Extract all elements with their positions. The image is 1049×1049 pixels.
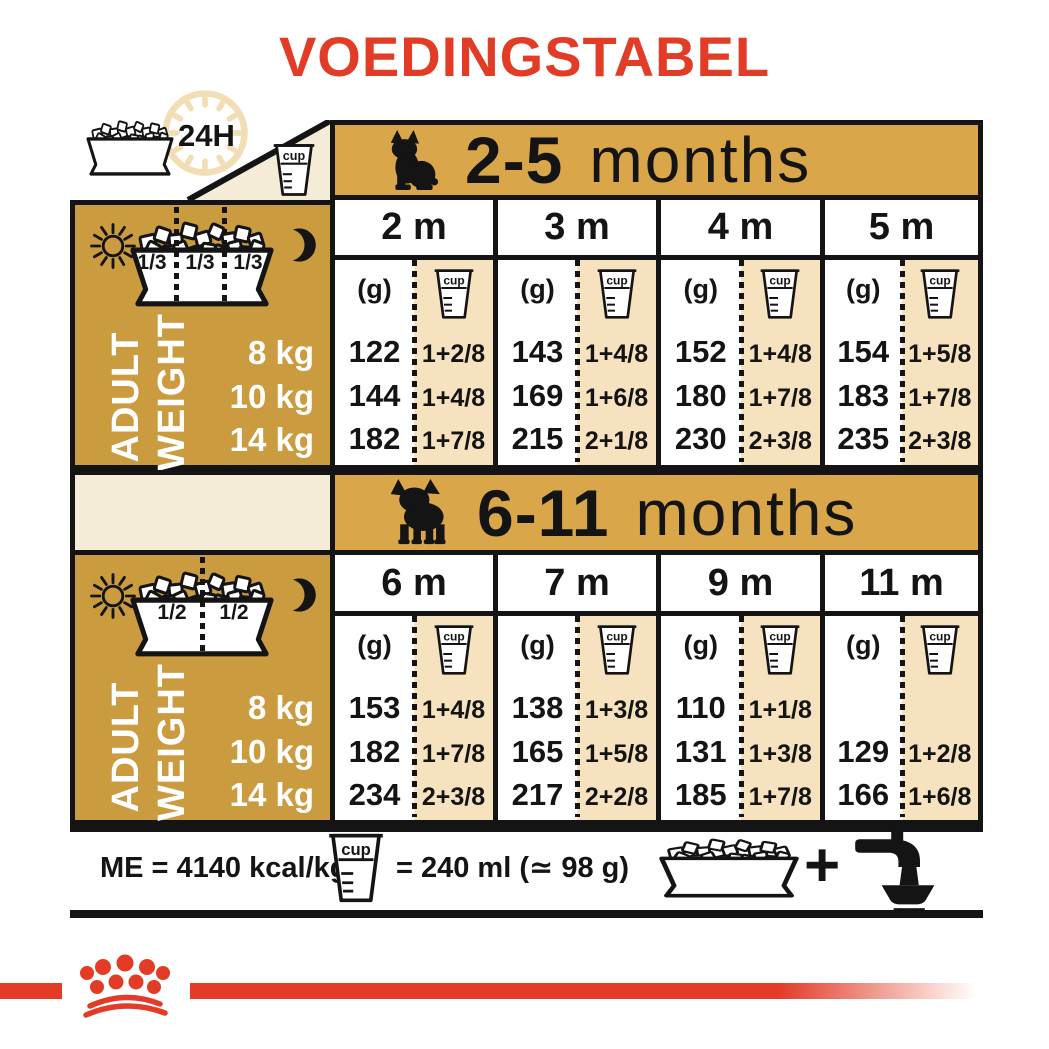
portion-fraction: 1/3 [226, 251, 270, 275]
cups-value [902, 692, 979, 724]
cup-icon [902, 623, 979, 679]
water-tap-icon [848, 824, 944, 912]
grams-value: 110 [661, 692, 741, 724]
cups-value: 1+6/8 [577, 380, 656, 412]
weight-panel: 1/2 1/2 ADULT WEIGHT 8 kg 10 kg 14 kg [75, 555, 330, 820]
month-header-cell: 2 m [335, 200, 493, 255]
food-bowl-icon [652, 834, 806, 900]
grams-unit: (g) [825, 630, 902, 661]
footer-top-rule [70, 825, 983, 832]
grams-value: 183 [825, 380, 902, 412]
cups-value: 1+7/8 [902, 380, 979, 412]
weight-panel: 1/3 1/3 1/3 ADULT WEIGHT 8 kg 10 kg 14 k… [75, 205, 330, 465]
cups-value: 1+2/8 [414, 336, 493, 368]
month-data-cell: (g) 138 165 217 1+3/8 1+5/8 2+2/8 [498, 616, 656, 820]
month-data-cell: (g) 143 169 215 1+4/8 1+6/8 2+1/8 [498, 260, 656, 465]
cups-value: 1+1/8 [741, 692, 821, 724]
adult-label: ADULT [106, 672, 146, 822]
grams-unit: (g) [335, 274, 414, 305]
cup-equivalence-label: = 240 ml (≃ 98 g) [396, 850, 629, 886]
puppy-sitting-icon [389, 129, 439, 191]
grams-unit: (g) [661, 274, 741, 305]
grams-value: 131 [661, 736, 741, 768]
spacer-cell [75, 475, 330, 550]
portion-fraction: 1/2 [150, 601, 194, 625]
cups-value: 1+7/8 [741, 779, 821, 811]
portion-fraction: 1/3 [178, 251, 222, 275]
cup-icon [414, 267, 493, 323]
cups-value: 1+2/8 [902, 736, 979, 768]
grams-value: 166 [825, 779, 902, 811]
cup-icon [902, 267, 979, 323]
weight-row-label: 10 kg [174, 735, 314, 769]
grams-value: 215 [498, 423, 577, 455]
grams-unit: (g) [335, 630, 414, 661]
month-label: 9 m [708, 562, 773, 605]
month-label: 11 m [859, 562, 944, 605]
months-word: months [635, 476, 857, 550]
24h-label: 24H [178, 118, 235, 154]
cup-icon [577, 267, 656, 323]
month-label: 4 m [708, 206, 773, 249]
month-label: 5 m [869, 206, 934, 249]
age-range: 2-5 [465, 122, 563, 198]
moon-icon [279, 223, 317, 267]
moon-icon [279, 573, 317, 617]
grams-value: 180 [661, 380, 741, 412]
age-band-2-5: 2-5 months [335, 125, 978, 195]
royal-canin-crown-logo [62, 948, 188, 1020]
age-band-6-11: 6-11 months [335, 475, 978, 550]
weight-row-label: 10 kg [174, 380, 314, 414]
month-header-cell: 7 m [498, 555, 656, 611]
cups-value: 1+4/8 [414, 380, 493, 412]
month-label: 2 m [381, 206, 446, 249]
table-2-5-months: 24H 2-5 months 1/3 1/3 1/3 ADULT WEIGHT … [70, 120, 983, 470]
grams-value: 234 [335, 779, 414, 811]
cups-value: 1+3/8 [741, 736, 821, 768]
portion-fraction: 1/2 [212, 601, 256, 625]
cups-value: 1+4/8 [741, 336, 821, 368]
month-data-cell: (g) 129 166 1+2/8 1+6/8 [825, 616, 978, 820]
brand-stripe-left [0, 983, 62, 999]
grams-value: 235 [825, 423, 902, 455]
weight-row-label: 8 kg [174, 336, 314, 370]
cups-value: 2+3/8 [902, 423, 979, 455]
grams-value: 144 [335, 380, 414, 412]
cups-value: 1+5/8 [577, 736, 656, 768]
adult-label: ADULT [106, 322, 146, 472]
month-label: 6 m [381, 562, 446, 605]
cups-value: 2+2/8 [577, 779, 656, 811]
age-range: 6-11 [477, 475, 609, 551]
cups-value: 1+4/8 [414, 692, 493, 724]
grams-value: 185 [661, 779, 741, 811]
grams-value: 217 [498, 779, 577, 811]
month-data-cell: (g) 154 183 235 1+5/8 1+7/8 2+3/8 [825, 260, 978, 465]
month-header-cell: 4 m [661, 200, 820, 255]
grams-value: 182 [335, 736, 414, 768]
cup-icon [326, 832, 386, 904]
weight-row-label: 14 kg [174, 778, 314, 812]
cups-value: 1+6/8 [902, 779, 979, 811]
grams-unit: (g) [661, 630, 741, 661]
brand-stripe-right [190, 983, 985, 999]
grams-value: 182 [335, 423, 414, 455]
grams-value: 165 [498, 736, 577, 768]
grams-value: 230 [661, 423, 741, 455]
cups-value: 2+3/8 [741, 423, 821, 455]
months-word: months [589, 123, 811, 197]
food-bowl-icon [82, 116, 178, 178]
grams-unit: (g) [498, 630, 577, 661]
cup-icon [577, 623, 656, 679]
grams-value: 122 [335, 336, 414, 368]
table-6-11-months: 6-11 months 1/2 1/2 ADULT WEIGHT 8 kg 10… [70, 470, 983, 825]
month-data-cell: (g) 153 182 234 1+4/8 1+7/8 2+3/8 [335, 616, 493, 820]
month-header-cell: 3 m [498, 200, 656, 255]
feeding-table-poster: VOEDINGSTABEL 24H 2-5 months 1/3 1/3 [0, 0, 1049, 1049]
month-data-cell: (g) 110 131 185 1+1/8 1+3/8 1+7/8 [661, 616, 820, 820]
plus-sign: + [804, 833, 840, 899]
grams-value: 129 [825, 736, 902, 768]
month-label: 3 m [544, 206, 609, 249]
cups-value: 1+5/8 [902, 336, 979, 368]
cups-value: 2+1/8 [577, 423, 656, 455]
month-header-cell: 5 m [825, 200, 978, 255]
cups-value: 2+3/8 [414, 779, 493, 811]
grams-value: 143 [498, 336, 577, 368]
cups-value: 1+7/8 [414, 423, 493, 455]
cups-value: 1+4/8 [577, 336, 656, 368]
cup-icon [741, 623, 821, 679]
month-data-cell: (g) 122 144 182 1+2/8 1+4/8 1+7/8 [335, 260, 493, 465]
grams-value: 138 [498, 692, 577, 724]
cup-icon [741, 267, 821, 323]
footer-bottom-rule [70, 910, 983, 918]
cups-value: 1+3/8 [577, 692, 656, 724]
page-title: VOEDINGSTABEL [0, 24, 1049, 89]
grams-value [825, 692, 902, 724]
weight-row-label: 8 kg [174, 691, 314, 725]
grams-value: 154 [825, 336, 902, 368]
portion-fraction: 1/3 [130, 251, 174, 275]
cup-icon [414, 623, 493, 679]
grams-unit: (g) [825, 274, 902, 305]
grams-value: 169 [498, 380, 577, 412]
month-data-cell: (g) 152 180 230 1+4/8 1+7/8 2+3/8 [661, 260, 820, 465]
month-header-cell: 6 m [335, 555, 493, 611]
cups-value: 1+7/8 [414, 736, 493, 768]
month-label: 7 m [544, 562, 609, 605]
puppy-standing-icon [389, 479, 451, 547]
grams-value: 152 [661, 336, 741, 368]
grams-value: 153 [335, 692, 414, 724]
daily-ration-legend: 24H [70, 120, 330, 200]
portion-divider [200, 557, 205, 653]
month-header-cell: 9 m [661, 555, 820, 611]
weight-row-label: 14 kg [174, 423, 314, 457]
month-header-cell: 11 m [825, 555, 978, 611]
metabolizable-energy-label: ME = 4140 kcal/kg [100, 850, 347, 886]
grams-unit: (g) [498, 274, 577, 305]
cups-value: 1+7/8 [741, 380, 821, 412]
